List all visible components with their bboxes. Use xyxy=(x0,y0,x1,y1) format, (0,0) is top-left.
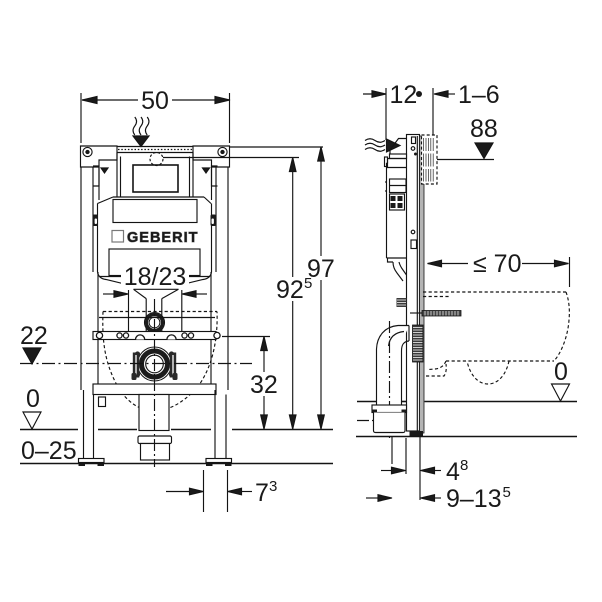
svg-text:12: 12 xyxy=(390,81,418,109)
svg-text:1–6: 1–6 xyxy=(458,81,500,109)
svg-text:7: 7 xyxy=(255,479,269,507)
svg-text:5: 5 xyxy=(503,484,511,501)
svg-text:88: 88 xyxy=(470,115,498,143)
svg-text:9–13: 9–13 xyxy=(446,485,502,513)
svg-text:50: 50 xyxy=(141,87,169,115)
svg-text:0: 0 xyxy=(554,358,568,386)
svg-text:4: 4 xyxy=(446,458,460,486)
svg-text:8: 8 xyxy=(460,457,468,474)
svg-text:3: 3 xyxy=(269,478,277,495)
svg-text:5: 5 xyxy=(304,275,312,292)
svg-text:≤ 70: ≤ 70 xyxy=(473,250,521,278)
svg-text:92: 92 xyxy=(276,276,304,304)
svg-text:0–25: 0–25 xyxy=(21,437,77,465)
svg-text:GEBERIT: GEBERIT xyxy=(127,230,198,246)
svg-text:18/23: 18/23 xyxy=(124,263,187,291)
svg-text:32: 32 xyxy=(250,371,278,399)
svg-text:0: 0 xyxy=(26,385,40,413)
svg-text:22: 22 xyxy=(20,322,48,350)
